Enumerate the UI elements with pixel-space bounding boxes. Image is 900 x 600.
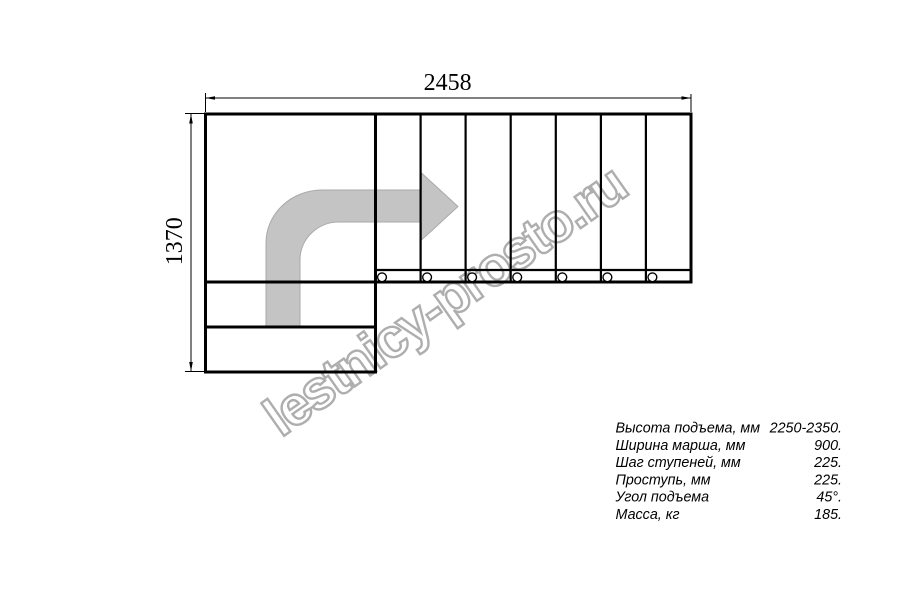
svg-text:185.: 185. [814, 507, 842, 523]
svg-text:Угол подъема: Угол подъема [615, 490, 710, 506]
svg-text:225.: 225. [813, 455, 842, 471]
svg-text:2458: 2458 [424, 70, 472, 96]
svg-text:Проступь, мм: Проступь, мм [616, 472, 711, 488]
svg-text:Высота подъема, мм: Высота подъема, мм [616, 421, 761, 437]
svg-text:Шаг ступеней, мм: Шаг ступеней, мм [616, 455, 741, 471]
svg-text:900.: 900. [814, 438, 842, 454]
svg-text:2250-2350.: 2250-2350. [769, 421, 842, 437]
svg-text:Ширина марша, мм: Ширина марша, мм [616, 438, 746, 454]
svg-text:45°.: 45°. [816, 490, 842, 506]
svg-text:Масса, кг: Масса, кг [616, 507, 680, 523]
svg-text:225.: 225. [813, 472, 842, 488]
svg-text:1370: 1370 [162, 217, 188, 265]
